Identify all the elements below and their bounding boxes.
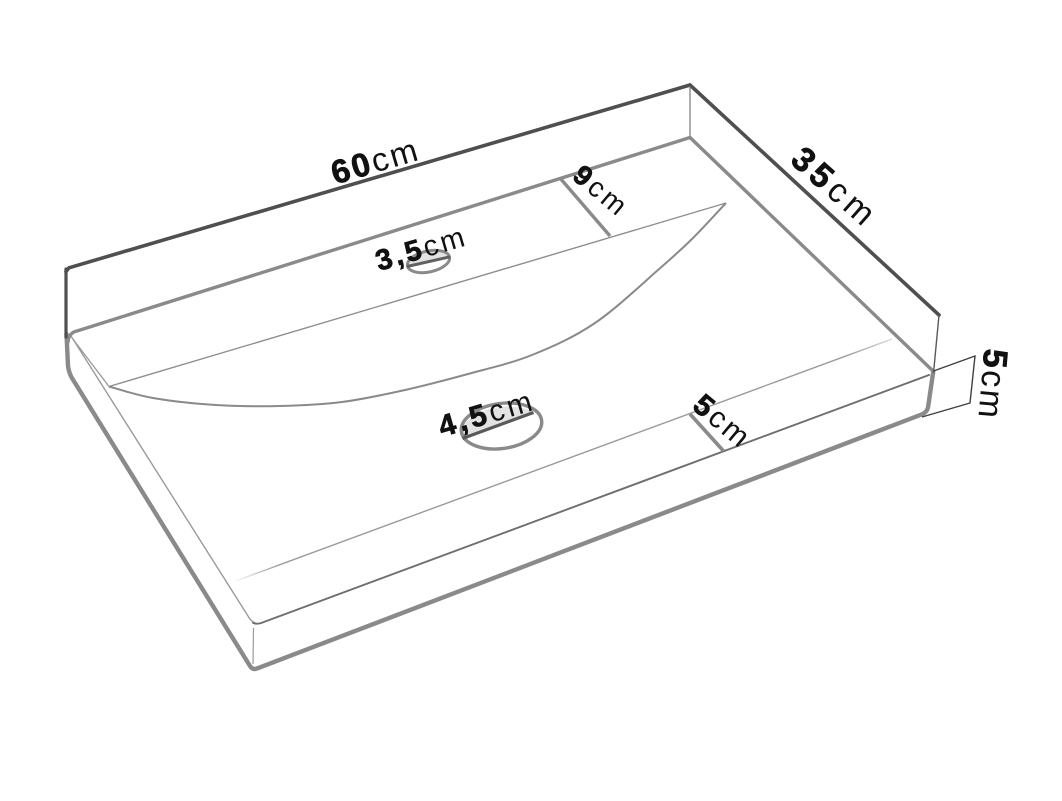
svg-text:5cm: 5cm [970,347,1014,422]
